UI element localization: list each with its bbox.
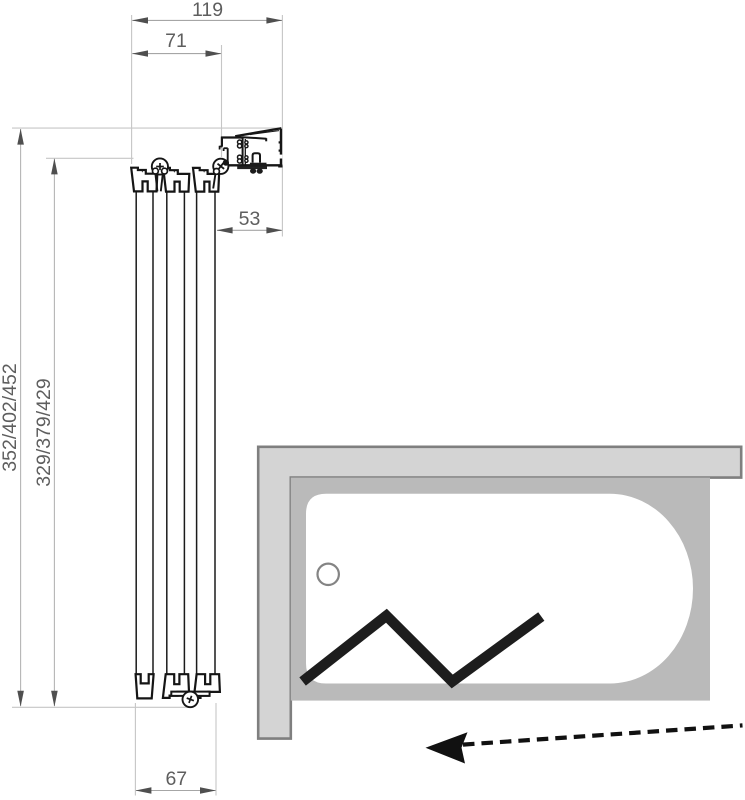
svg-text:119: 119 [192,0,223,21]
svg-text:53: 53 [239,208,261,230]
svg-text:352/402/452: 352/402/452 [0,363,21,471]
svg-text:329/379/429: 329/379/429 [33,378,55,486]
svg-text:67: 67 [165,768,187,790]
svg-text:71: 71 [165,30,187,52]
